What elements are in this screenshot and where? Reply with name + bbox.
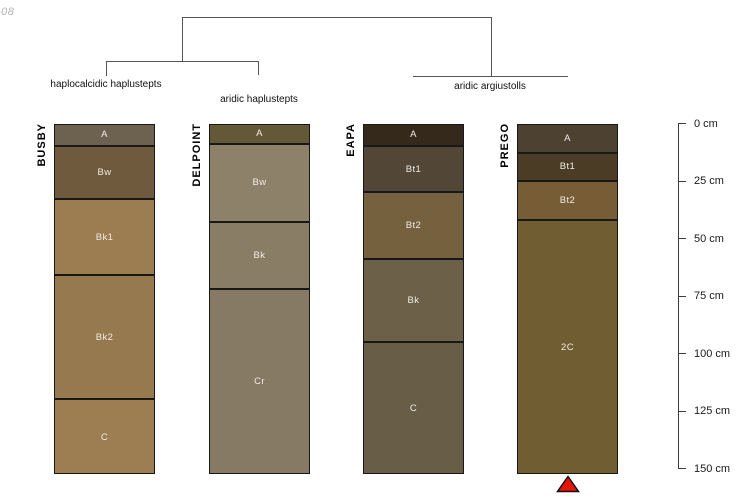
horizon-eapa-bt1: Bt1 xyxy=(364,145,463,191)
tree-label-aridic-haplustepts: aridic haplustepts xyxy=(220,94,298,105)
horizon-delpoint-a: A xyxy=(210,125,309,143)
horizon-label: Bk2 xyxy=(96,332,114,343)
horizon-delpoint-bk: Bk xyxy=(210,221,309,288)
depth-tick-75 xyxy=(678,296,686,297)
profile-label-delpoint: DELPOINT xyxy=(191,123,203,187)
horizon-busby-bw: Bw xyxy=(55,145,154,198)
depth-tick-label-125: 125 cm xyxy=(694,405,730,417)
horizon-label: Bt1 xyxy=(560,161,575,172)
profile-column-delpoint: ABwBkCr xyxy=(209,124,310,474)
horizon-prego-a: A xyxy=(518,125,617,153)
dendrogram-left-vline xyxy=(182,17,183,61)
depth-tick-0 xyxy=(678,123,686,124)
watermark-text: -08 xyxy=(0,6,14,18)
depth-tick-100 xyxy=(678,353,686,354)
horizon-label: Cr xyxy=(254,376,265,387)
depth-tick-label-0: 0 cm xyxy=(694,118,718,130)
horizon-label: Bk xyxy=(254,250,266,261)
horizon-eapa-bk: Bk xyxy=(364,258,463,341)
depth-tick-50 xyxy=(678,238,686,239)
tree-label-haplocalcidic-haplustepts: haplocalcidic haplustepts xyxy=(50,79,161,90)
horizon-label: Bk xyxy=(408,295,420,306)
profile-column-eapa: ABt1Bt2BkC xyxy=(363,124,464,474)
dendrogram-delpoint-stub xyxy=(258,61,259,75)
horizon-label: C xyxy=(101,432,108,443)
horizon-label: C xyxy=(410,403,417,414)
horizon-eapa-c: C xyxy=(364,341,463,474)
marker-triangle xyxy=(556,475,580,498)
triangle-up-icon xyxy=(556,475,580,493)
profile-column-prego: ABt1Bt22C xyxy=(517,124,618,474)
dendrogram-busby-stub xyxy=(106,61,107,76)
horizon-label: Bw xyxy=(253,177,267,188)
horizon-label: A xyxy=(564,133,571,144)
horizon-prego-bt1: Bt1 xyxy=(518,152,617,180)
depth-tick-label-100: 100 cm xyxy=(694,348,730,360)
dendrogram-root-hline xyxy=(182,17,491,18)
horizon-label: Bt2 xyxy=(406,220,421,231)
horizon-busby-bk2: Bk2 xyxy=(55,274,154,398)
depth-tick-label-75: 75 cm xyxy=(694,290,724,302)
horizon-busby-a: A xyxy=(55,125,154,146)
dendrogram-right-cluster-hline xyxy=(413,76,568,77)
horizon-busby-bk1: Bk1 xyxy=(55,198,154,274)
soil-profile-figure: -08 haplocalcidic haplustepts aridic hap… xyxy=(0,0,750,500)
depth-tick-125 xyxy=(678,411,686,412)
depth-tick-label-50: 50 cm xyxy=(694,233,724,245)
depth-tick-150 xyxy=(678,468,686,469)
profile-label-prego: PREGO xyxy=(499,123,511,168)
dendrogram-right-vline xyxy=(491,17,492,76)
depth-tick-label-150: 150 cm xyxy=(694,463,730,475)
depth-tick-label-25: 25 cm xyxy=(694,175,724,187)
horizon-label: A xyxy=(101,129,108,140)
horizon-label: 2C xyxy=(561,342,574,353)
horizon-delpoint-cr: Cr xyxy=(210,288,309,474)
horizon-label: Bt1 xyxy=(406,164,421,175)
horizon-label: A xyxy=(410,129,417,140)
horizon-busby-c: C xyxy=(55,398,154,473)
depth-tick-25 xyxy=(678,181,686,182)
horizon-label: Bt2 xyxy=(560,195,575,206)
horizon-label: Bw xyxy=(98,167,112,178)
horizon-eapa-a: A xyxy=(364,125,463,146)
tree-label-aridic-argiustolls: aridic argiustolls xyxy=(454,81,526,92)
horizon-eapa-bt2: Bt2 xyxy=(364,191,463,258)
profile-label-busby: BUSBY xyxy=(36,123,48,167)
horizon-prego-2c: 2C xyxy=(518,219,617,474)
horizon-label: Bk1 xyxy=(96,232,114,243)
horizon-delpoint-bw: Bw xyxy=(210,143,309,221)
profile-label-eapa: EAPA xyxy=(345,123,357,157)
dendrogram-left-cluster-hline xyxy=(106,61,259,62)
horizon-label: A xyxy=(256,128,263,139)
profile-column-busby: ABwBk1Bk2C xyxy=(54,124,155,474)
horizon-prego-bt2: Bt2 xyxy=(518,180,617,219)
